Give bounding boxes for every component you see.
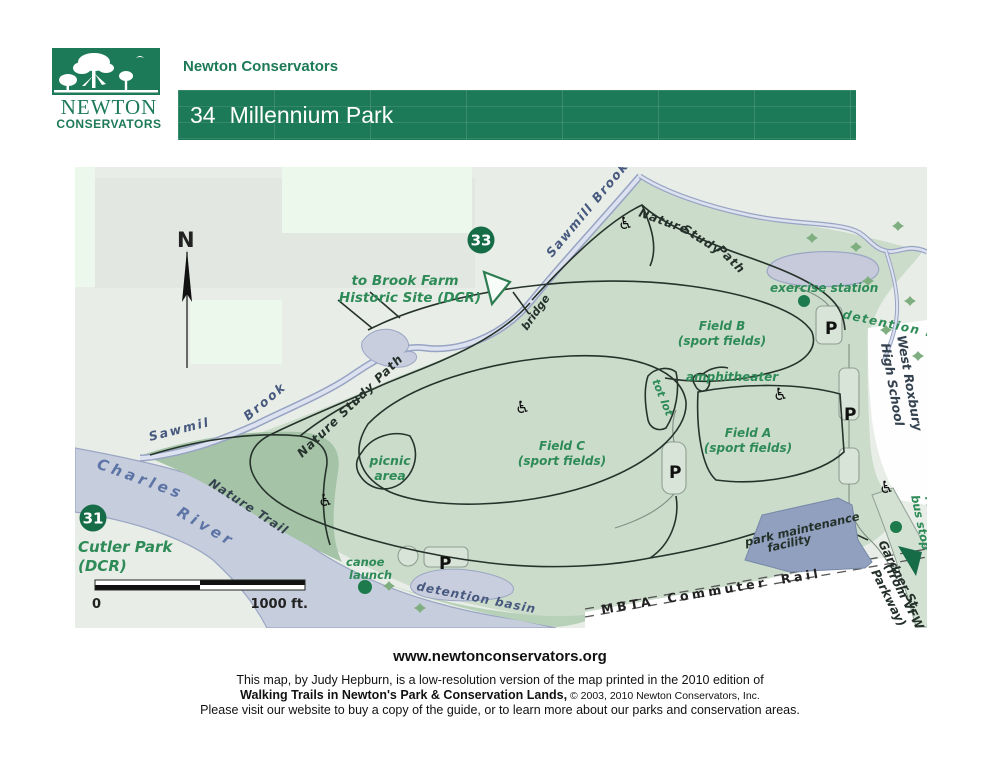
- logo-line1: NEWTON: [50, 96, 168, 118]
- canoe-launch-dot: [358, 580, 372, 594]
- label-canoe-launch: canoe: [346, 555, 385, 569]
- svg-text:♿: ♿: [773, 385, 788, 405]
- label-field-b: Field B: [699, 319, 745, 333]
- label-to-brook-farm: to Brook Farm: [351, 273, 458, 289]
- website-url: www.newtonconservators.org: [0, 648, 1000, 665]
- label-field-a: (sport fields): [704, 441, 792, 455]
- svg-text:31: 31: [83, 510, 104, 528]
- park-map: N 33 31 ♿♿ ♿♿ ♿ P P P P: [75, 167, 927, 628]
- svg-text:♿: ♿: [618, 214, 633, 234]
- parking-icon: P: [844, 405, 856, 425]
- svg-text:♿: ♿: [318, 491, 333, 511]
- label-canoe-launch: launch: [349, 568, 392, 582]
- north-label: N: [177, 228, 195, 252]
- attribution-line1: This map, by Judy Hepburn, is a low-reso…: [0, 673, 1000, 687]
- guide-title: Walking Trails in Newton's Park & Conser…: [240, 688, 567, 702]
- label-amphitheater: amphitheater: [686, 370, 779, 384]
- title-banner: 34 Millennium Park: [178, 90, 856, 140]
- label-exercise-station: exercise station: [770, 281, 878, 295]
- scale-end: 1000 ft.: [250, 597, 308, 612]
- scale-start: 0: [92, 597, 101, 612]
- label-to-brook-farm: Historic Site (DCR): [339, 290, 481, 306]
- logo-wordmark: NEWTON CONSERVATORS: [50, 96, 168, 131]
- label-field-c: (sport fields): [518, 454, 606, 468]
- newton-conservators-logo: [52, 48, 160, 95]
- attribution-line2: Walking Trails in Newton's Park & Conser…: [0, 688, 1000, 702]
- parking-icon: P: [669, 463, 681, 483]
- label-cutler-park: Cutler Park: [78, 538, 173, 556]
- label-picnic-area: picnic: [368, 453, 411, 468]
- svg-text:33: 33: [471, 232, 492, 250]
- page: NEWTON CONSERVATORS Newton Conservators …: [0, 0, 1000, 772]
- logo-tree-icon: [52, 48, 160, 95]
- label-field-b: (sport fields): [678, 334, 766, 348]
- park-number: 34: [190, 102, 216, 129]
- parking-icon: P: [439, 554, 451, 574]
- label-field-c: Field C: [539, 439, 585, 453]
- label-picnic-area: area: [374, 468, 406, 483]
- badge-31: 31: [80, 505, 107, 532]
- bus-stop-dot: [890, 521, 902, 533]
- page-title: Millennium Park: [230, 102, 394, 129]
- label-field-a: Field A: [725, 426, 772, 440]
- badge-33: 33: [468, 227, 495, 254]
- logo-line2: CONSERVATORS: [50, 118, 168, 131]
- parking-icon: P: [825, 319, 837, 339]
- attribution-line3: Please visit our website to buy a copy o…: [0, 703, 1000, 717]
- exercise-station-dot: [798, 295, 810, 307]
- label-cutler-park: (DCR): [78, 557, 127, 575]
- svg-text:♿: ♿: [515, 398, 530, 418]
- org-name: Newton Conservators: [183, 58, 338, 75]
- copyright: © 2003, 2010 Newton Conservators, Inc.: [567, 690, 760, 702]
- svg-text:♿: ♿: [879, 478, 894, 498]
